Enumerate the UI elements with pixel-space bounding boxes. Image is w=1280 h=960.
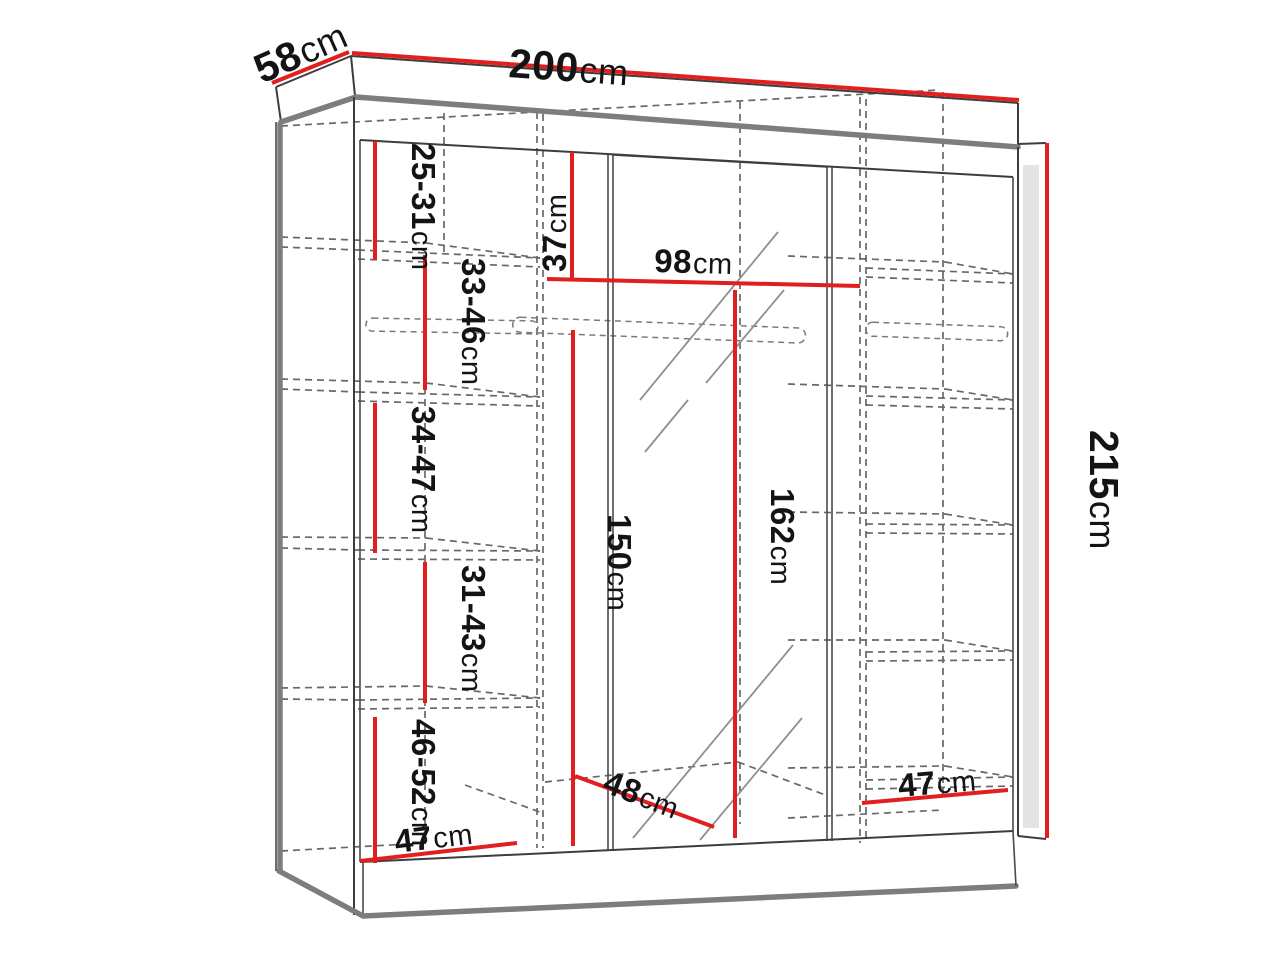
diagram-canvas: 58cm 200cm 215cm 25-31cm 33-46cm 34-47cm… bbox=[0, 0, 1280, 960]
dim-label-shelf-gap-4: 31-43cm bbox=[455, 565, 492, 693]
right-hanging-rail bbox=[866, 322, 1008, 341]
dimension-lines bbox=[272, 52, 1047, 863]
dim-label-hanging-height: 150cm bbox=[601, 514, 638, 611]
dim-label-height: 215cm bbox=[1081, 430, 1127, 550]
dimension-labels: 58cm 200cm 215cm 25-31cm 33-46cm 34-47cm… bbox=[247, 11, 1127, 860]
middle-hanging-rail bbox=[512, 317, 805, 343]
dim-label-mirror-height: 162cm bbox=[764, 488, 801, 585]
right-section-shelves bbox=[788, 256, 1013, 789]
dim-label-top-shelf: 37cm bbox=[536, 194, 573, 272]
wardrobe-dimension-diagram: 58cm 200cm 215cm 25-31cm 33-46cm 34-47cm… bbox=[0, 0, 1280, 960]
dim-label-middle-width: 98cm bbox=[654, 242, 733, 281]
dim-line-width bbox=[352, 53, 1019, 100]
hidden-edges-dashed bbox=[281, 90, 943, 851]
dim-label-width: 200cm bbox=[507, 40, 630, 94]
dim-label-shelf-gap-1: 25-31cm bbox=[405, 143, 442, 271]
dim-label-shelf-gap-2: 33-46cm bbox=[455, 258, 492, 386]
dim-label-depth: 58cm bbox=[247, 11, 354, 92]
dim-label-shelf-gap-3: 34-47cm bbox=[405, 406, 442, 534]
